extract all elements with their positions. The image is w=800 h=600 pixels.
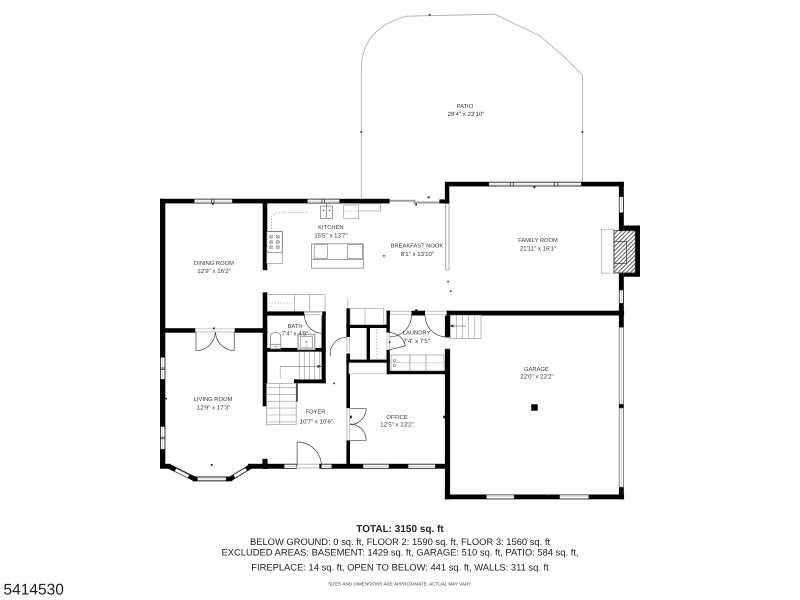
svg-text:12'5" x 13'2": 12'5" x 13'2" (380, 422, 413, 429)
svg-text:8'1" x 13'10": 8'1" x 13'10" (401, 251, 434, 258)
svg-text:PATIO: PATIO (457, 103, 474, 110)
svg-text:FIREPLACE: 14 sq. ft, OPEN TO: FIREPLACE: 14 sq. ft, OPEN TO BELOW: 441… (251, 561, 549, 572)
svg-text:10'7" x 10'6": 10'7" x 10'6" (300, 419, 333, 426)
svg-text:DINING ROOM: DINING ROOM (194, 260, 234, 267)
svg-text:28'4" x 23'10": 28'4" x 23'10" (448, 111, 485, 118)
svg-text:BELOW GROUND: 0 sq. ft, FLOOR: BELOW GROUND: 0 sq. ft, FLOOR 2: 1590 sq… (250, 536, 551, 547)
svg-text:BATH: BATH (287, 324, 302, 330)
svg-text:EXCLUDED AREAS: BASEMENT: 1429: EXCLUDED AREAS: BASEMENT: 1429 sq. ft, G… (221, 547, 578, 558)
svg-text:KITCHEN: KITCHEN (318, 224, 343, 231)
svg-text:12'9" x 16'2": 12'9" x 16'2" (197, 268, 230, 275)
svg-text:TOTAL: 3150 sq. ft: TOTAL: 3150 sq. ft (356, 524, 444, 535)
svg-text:22'0" x 23'2": 22'0" x 23'2" (520, 373, 553, 380)
svg-text:FAMILY ROOM: FAMILY ROOM (518, 237, 558, 244)
svg-text:21'11" x 16'1": 21'11" x 16'1" (520, 245, 556, 252)
svg-text:15'5" x 13'7": 15'5" x 13'7" (314, 232, 347, 239)
svg-text:7'4" x 4'9": 7'4" x 4'9" (282, 331, 309, 338)
svg-text:LAUNDRY: LAUNDRY (403, 331, 431, 337)
svg-text:FOYER: FOYER (306, 409, 326, 416)
svg-text:GARAGE: GARAGE (524, 366, 549, 373)
svg-text:7'4" x 7'5": 7'4" x 7'5" (403, 338, 430, 345)
svg-text:SIZES AND DIMENSIONS ARE APPRO: SIZES AND DIMENSIONS ARE APPROXIMATE, AC… (328, 581, 472, 586)
svg-text:12'9" x 17'3": 12'9" x 17'3" (197, 405, 230, 412)
svg-text:LIVING ROOM: LIVING ROOM (194, 396, 233, 403)
svg-text:BREAKFAST NOOK: BREAKFAST NOOK (391, 242, 444, 249)
svg-text:5414530: 5414530 (4, 582, 65, 599)
svg-text:OFFICE: OFFICE (386, 414, 407, 421)
